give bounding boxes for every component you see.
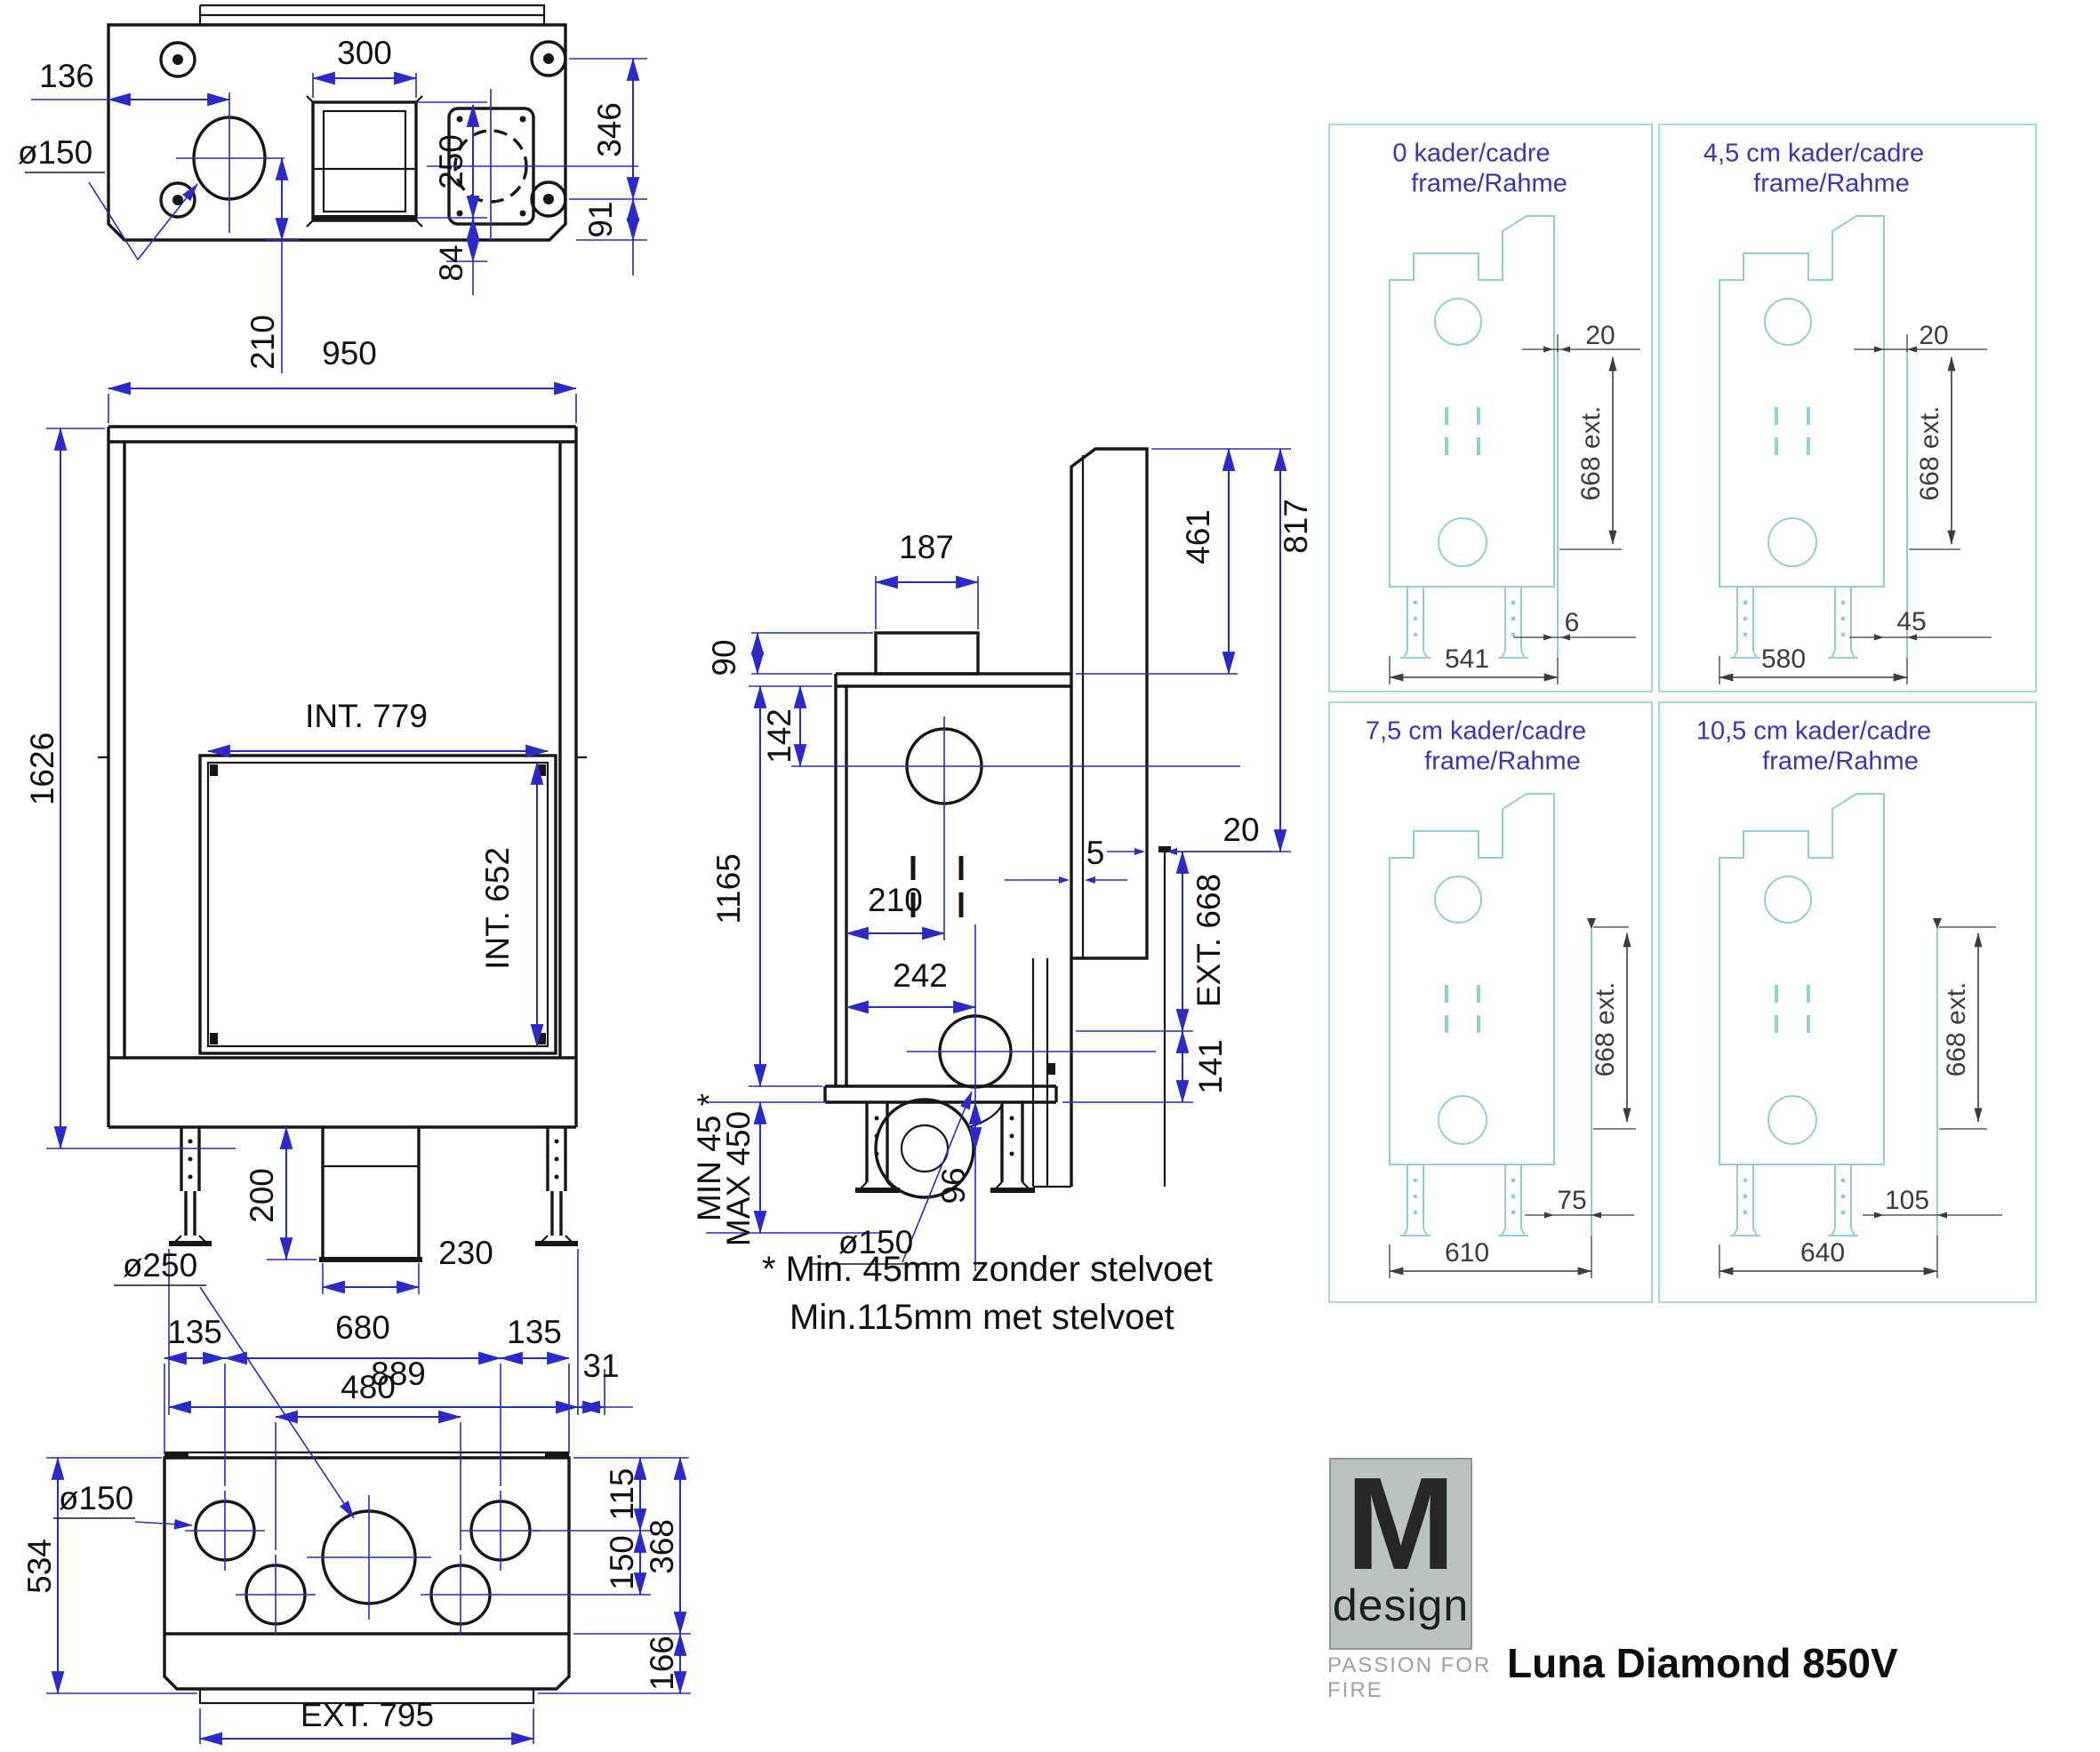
frame-q3-title-1: 7,5 cm kader/cadre [1366,717,1586,747]
dim-front-side-offset: 31 [582,1348,619,1385]
brand-tagline: PASSION FOR FIRE [1327,1653,1532,1703]
dim-side-max-clearance: MAX 450 [720,1111,757,1246]
frame-q3-ext: 668 ext. [1591,982,1621,1077]
dim-side-flue-from-front: 210 [868,882,923,919]
dim-bottom-big-diameter: ø250 [123,1247,197,1284]
frame-q3-width: 610 [1445,1238,1489,1268]
frame-q3-offset: 75 [1557,1186,1586,1216]
dim-bottom-base-depth: 166 [644,1636,681,1691]
dim-side-flue-from-top: 142 [761,708,798,764]
dim-side-blower-drop: 96 [935,1167,973,1204]
frame-q2-width: 580 [1761,644,1806,675]
frame-q4-ext: 668 ext. [1942,982,1972,1077]
frame-variant-panel [1329,124,2036,1302]
frame-q4-dims [1719,918,2002,1278]
dim-top-depth: 346 [591,102,629,157]
frame-q3-dims [1390,918,1636,1278]
dim-top-duct-depth: 250 [433,134,470,189]
frame-q4-width: 640 [1800,1238,1845,1268]
product-name: Luna Diamond 850V [1507,1639,1898,1687]
dim-side-chimney-height: 817 [1278,499,1315,554]
dim-top-duct-width: 300 [337,35,392,72]
dim-side-duct-height: 90 [706,639,743,676]
dim-side-duct-width: 187 [899,529,954,566]
dim-front-int-width: INT. 779 [305,698,428,735]
frame-q4-title-1: 10,5 cm kader/cadre [1696,717,1931,747]
note-line-1: * Min. 45mm zonder stelvoet [762,1250,1213,1290]
dim-side-glass-gap: 5 [1086,835,1105,872]
dim-front-duct-height: 200 [244,1168,281,1223]
dim-bottom-top-offset: 115 [604,1468,641,1521]
frame-q2-gap: 20 [1919,321,1948,351]
top-view [25,5,647,373]
technical-drawing-page: 136 ø150 300 250 84 346 91 210 950 1626 … [0,0,2100,1752]
frame-q4-offset: 105 [1885,1186,1929,1216]
dim-side-frame-gap: 20 [1222,812,1259,849]
frame-q2-title-2: frame/Rahme [1753,170,1910,199]
note-line-2: Min.115mm met stelvoet [790,1298,1174,1338]
dim-front-duct-width: 230 [438,1235,493,1272]
dim-side-body-height: 1165 [710,853,748,924]
frame-q1-title-2: frame/Rahme [1411,170,1567,199]
side-view [706,449,1291,1271]
frame-q2-ext: 668 ext. [1915,406,1945,501]
frame-q2-dims [1719,334,1992,684]
frame-q3-title-2: frame/Rahme [1424,748,1581,777]
dim-side-lower-flue: 242 [893,957,948,995]
dim-bottom-ext-width: EXT. 795 [301,1697,434,1734]
brand-logo-letter: M [1331,1467,1471,1582]
frame-q4-title-2: frame/Rahme [1762,748,1919,777]
frame-q1-width: 541 [1445,644,1489,675]
dim-side-chimney-top: 461 [1180,509,1217,564]
dim-bottom-margin-right: 135 [507,1314,562,1351]
dim-front-width: 950 [322,335,377,372]
frame-q1-ext: 668 ext. [1576,406,1607,501]
dim-bottom-row-gap: 150 [604,1535,641,1590]
dim-bottom-small-diameter: ø150 [59,1480,133,1517]
dim-top-duct-offset: 84 [433,244,470,281]
dim-bottom-margin-left: 135 [167,1314,222,1351]
frame-q1-gap: 20 [1585,321,1615,351]
frame-q1-offset: 6 [1565,608,1580,638]
dim-bottom-depth-total: 534 [21,1539,59,1594]
frame-q1-dims [1390,334,1640,684]
brand-logo: M design [1329,1458,1472,1650]
frame-q2-title-1: 4,5 cm kader/cadre [1703,140,1924,169]
dim-front-int-height: INT. 652 [479,847,517,970]
dim-side-ext-height: EXT. 668 [1190,874,1228,1007]
dim-bottom-inner-span: 480 [341,1369,396,1406]
drawing-canvas [0,0,2100,1752]
dim-bottom-center-span: 680 [335,1309,390,1347]
dim-bottom-body-depth: 368 [644,1519,681,1574]
dim-side-bottom-offset: 141 [1192,1039,1230,1094]
dim-top-left-to-flue: 136 [39,58,94,95]
frame-q2-offset: 45 [1896,607,1926,637]
dim-top-flue-diameter: ø150 [18,134,92,172]
dim-top-flue-from-front: 210 [244,315,282,370]
brand-logo-word: design [1331,1582,1471,1628]
frame-q1-title-1: 0 kader/cadre [1392,140,1550,169]
dim-front-total-height: 1626 [24,732,61,805]
dim-top-rear-offset: 91 [582,201,620,237]
